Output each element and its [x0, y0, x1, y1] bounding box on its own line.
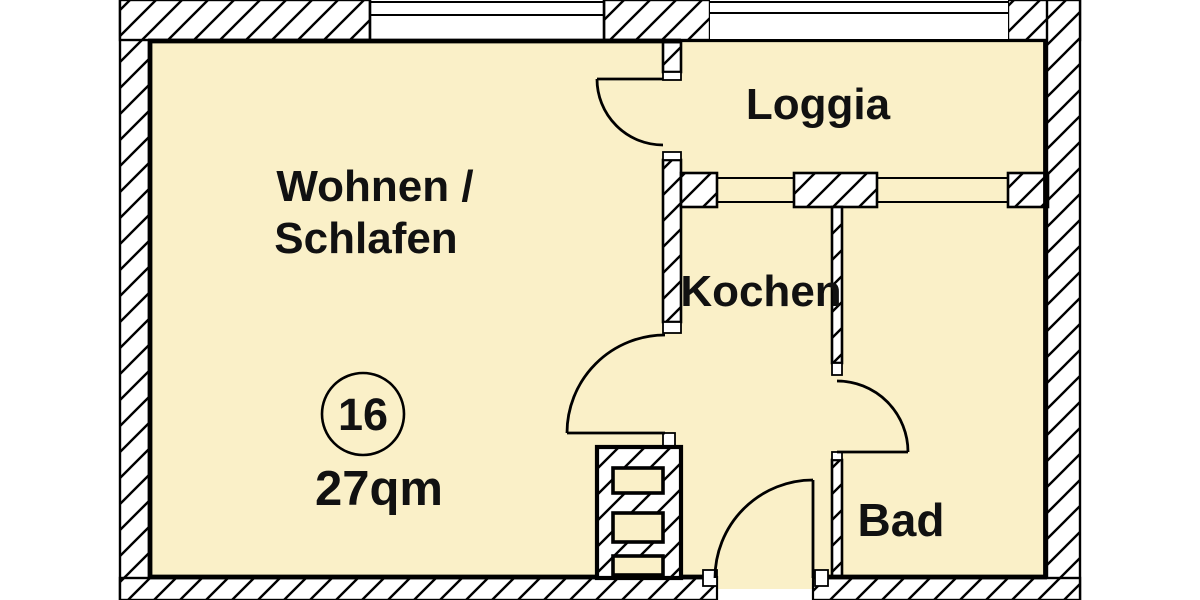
shaft-slot-2 [613, 513, 663, 542]
shaft-slot-3 [613, 556, 663, 575]
floor-plan: Wohnen / Schlafen Loggia Kochen Bad 16 2… [0, 0, 1200, 600]
floor-plan-page: Wohnen / Schlafen Loggia Kochen Bad 16 2… [0, 0, 1200, 600]
left-exterior-wall [120, 0, 150, 600]
right-exterior-wall [1047, 0, 1080, 600]
top-exterior-wall-left [120, 0, 370, 40]
installation-shaft [597, 447, 681, 578]
kochen-bad-wall-lower [832, 460, 842, 577]
loggia-bottom-wall-mid-block [794, 173, 877, 207]
unit-area: 27qm [315, 462, 443, 516]
loggia-bottom-wall-right-block [1008, 173, 1048, 207]
mid-wall-upper-stub [663, 42, 681, 72]
unit-number: 16 [338, 389, 388, 440]
loggia-railing [710, 0, 1008, 40]
loggia-bottom-wall-left-block [681, 173, 717, 207]
top-wall-pillar [604, 0, 710, 40]
room-label-loggia: Loggia [746, 80, 891, 129]
room-label-kochen: Kochen [680, 267, 841, 316]
room-label-wohnen-line1: Wohnen / [276, 162, 473, 211]
room-label-bad: Bad [858, 494, 945, 546]
top-window [370, 0, 604, 40]
bottom-exterior-wall [120, 578, 1080, 600]
room-label-wohnen-line2: Schlafen [274, 214, 457, 263]
mid-wall-main [663, 160, 681, 322]
shaft-slot-1 [613, 468, 663, 493]
entrance-opening [717, 575, 813, 600]
